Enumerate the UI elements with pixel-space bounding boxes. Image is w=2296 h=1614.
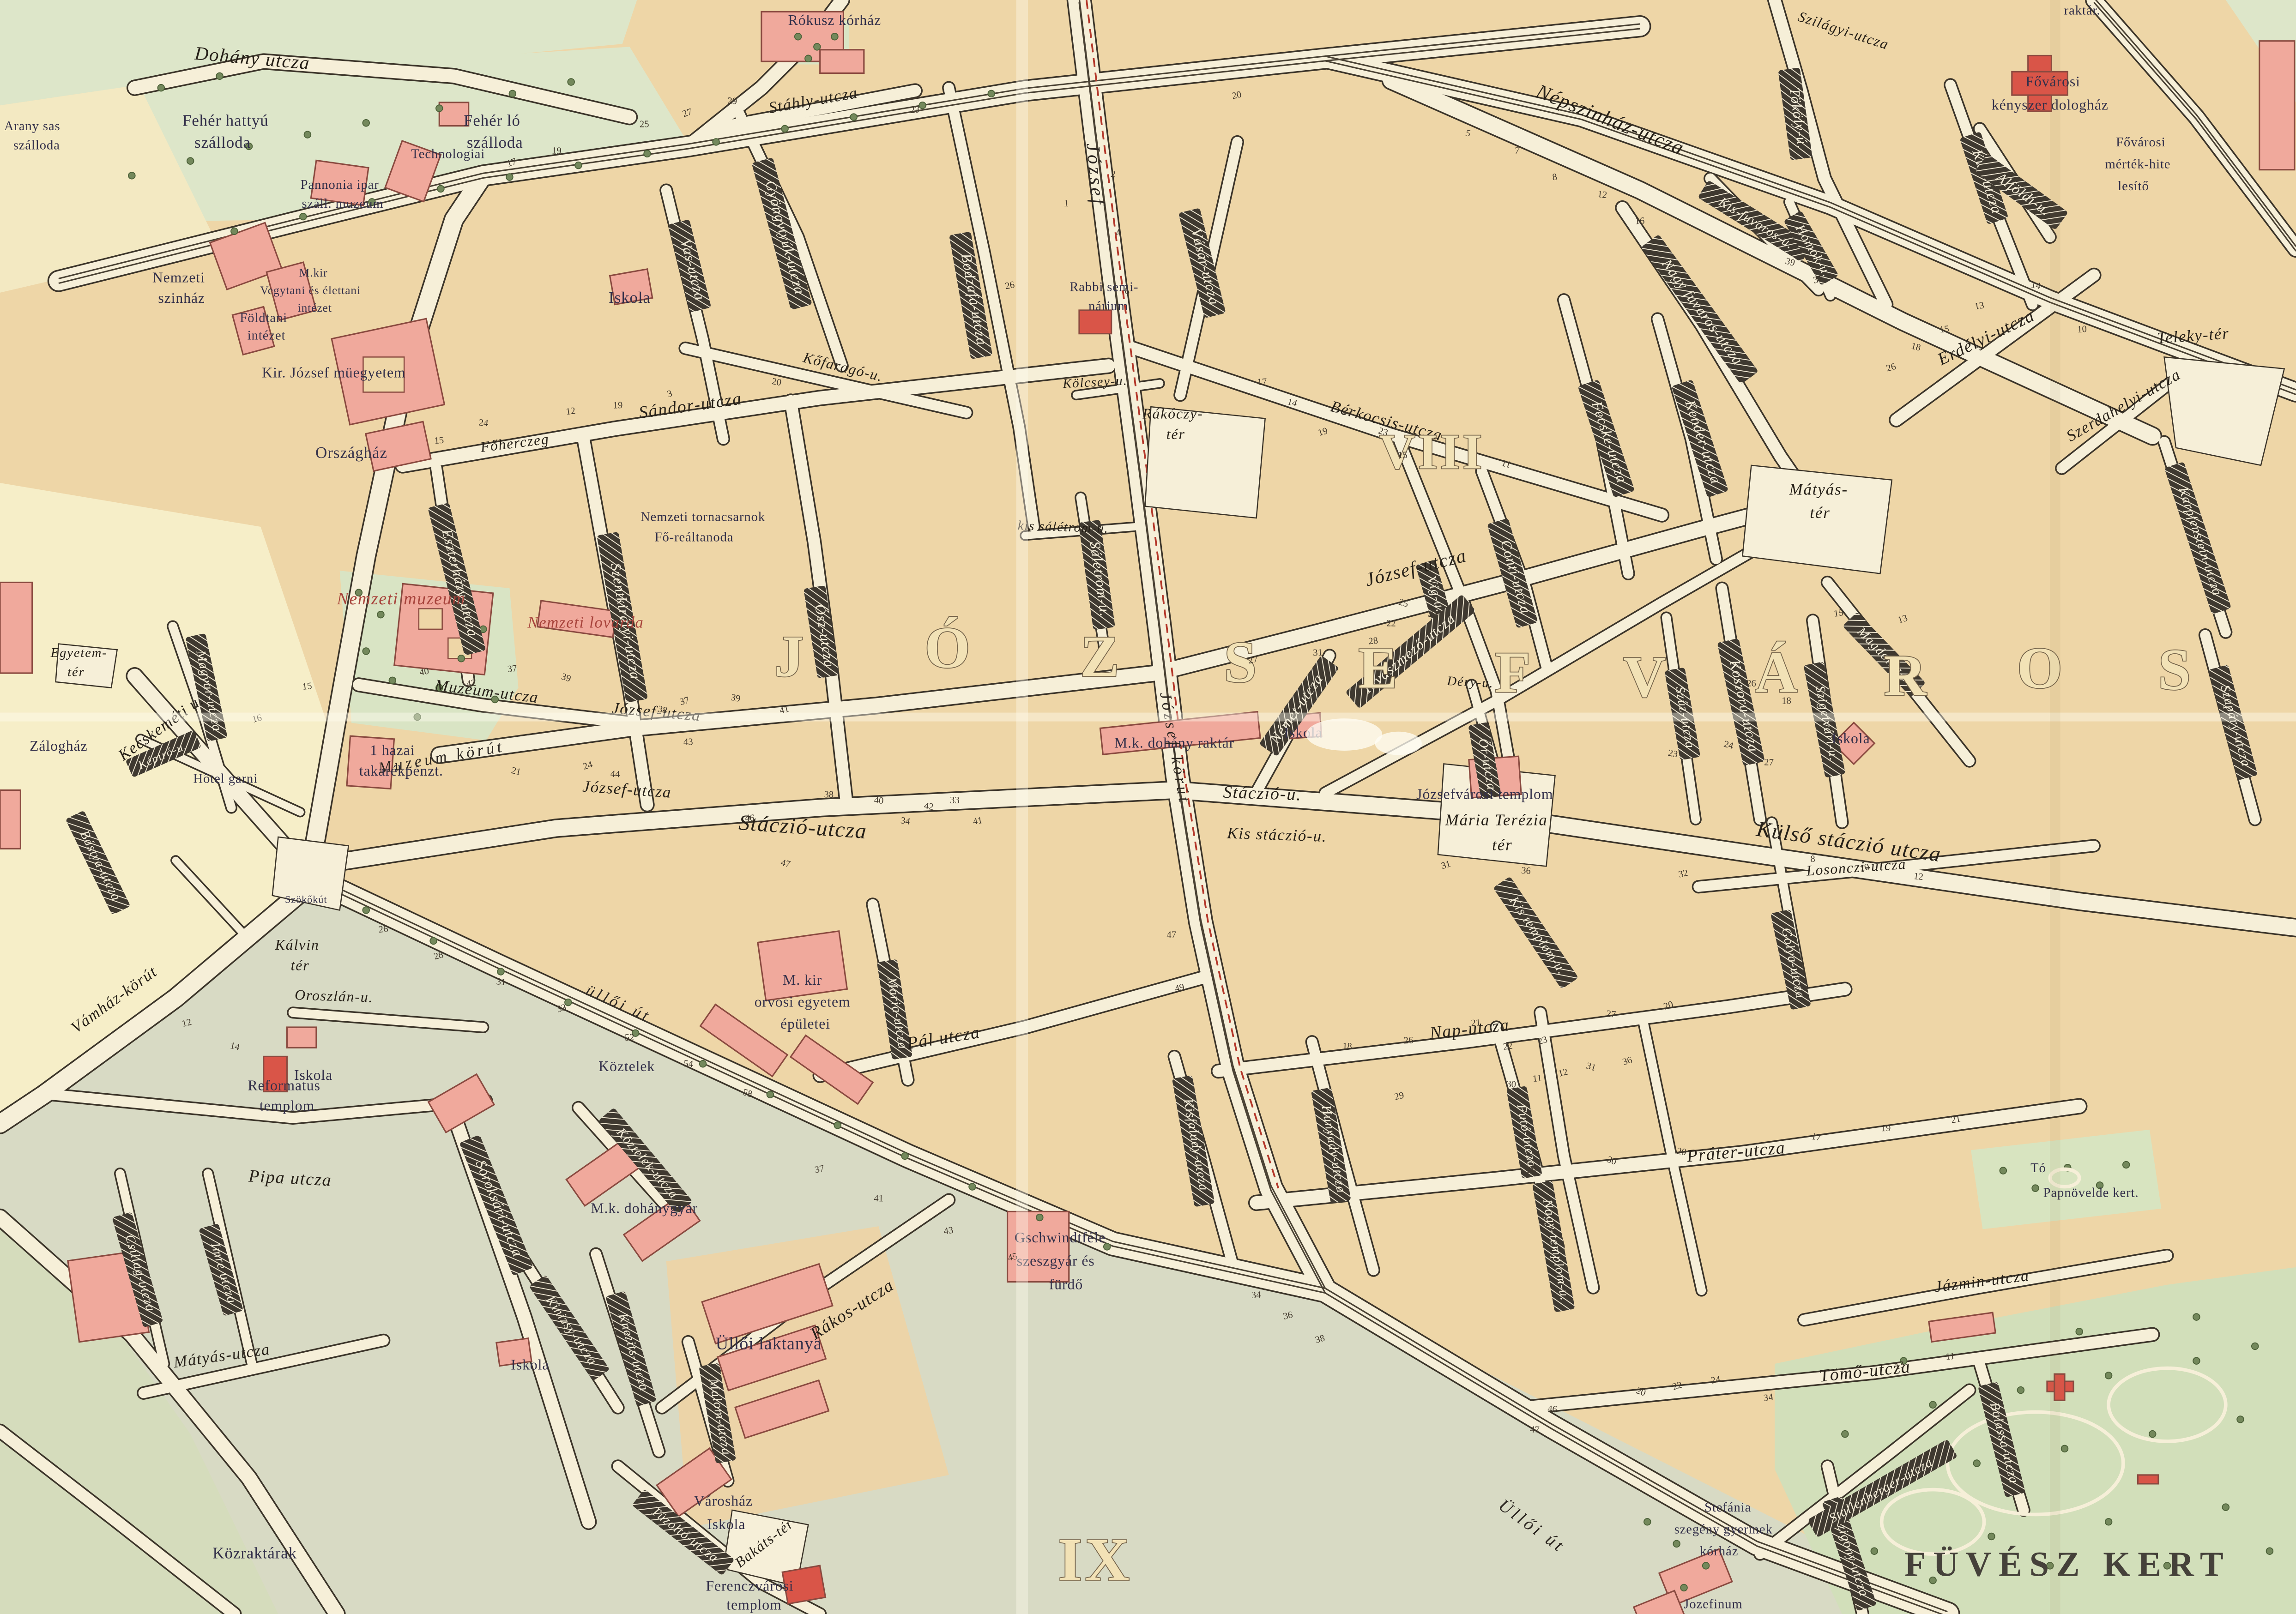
house-number: 19 bbox=[613, 400, 623, 410]
paper-damage bbox=[1375, 732, 1421, 755]
building bbox=[0, 582, 32, 673]
street-label: Stáczió-u. bbox=[1223, 783, 1302, 805]
tree-icon bbox=[1703, 1562, 1710, 1569]
poi-label: Nemzeti lovarda bbox=[527, 614, 644, 632]
house-number: 47 bbox=[1530, 1424, 1540, 1435]
poi-label: orvosi egyetem bbox=[755, 994, 851, 1010]
tree-icon bbox=[901, 1153, 908, 1160]
house-number: 8 bbox=[1810, 854, 1815, 864]
tree-icon bbox=[781, 126, 788, 132]
tree-icon bbox=[565, 999, 572, 1006]
tree-icon bbox=[1973, 1460, 1980, 1467]
tree-icon bbox=[216, 73, 223, 80]
house-number: 27 bbox=[1606, 1009, 1616, 1020]
house-number: 1 bbox=[1063, 199, 1069, 209]
tree-icon bbox=[437, 186, 444, 193]
poi-label: raktár. bbox=[2064, 4, 2101, 18]
tree-icon bbox=[1644, 1518, 1651, 1525]
house-number: 33 bbox=[950, 795, 960, 806]
house-number: 34 bbox=[1251, 1290, 1261, 1301]
house-number: 19 bbox=[1881, 1123, 1891, 1133]
poi-label: M.kir bbox=[299, 266, 328, 279]
tree-icon bbox=[795, 33, 802, 40]
poi-label: Pannonia ipar bbox=[301, 178, 379, 192]
poi-label: Technologiai bbox=[411, 147, 485, 161]
poi-label: Fehér ló bbox=[464, 112, 520, 130]
house-number: 11 bbox=[1532, 1073, 1542, 1084]
tree-icon bbox=[2000, 1167, 2007, 1174]
poi-label: intézet bbox=[298, 301, 332, 314]
house-number: 21 bbox=[1950, 1114, 1961, 1126]
park-title: FÜVÉSZ KERT bbox=[1904, 1545, 2231, 1584]
tree-icon bbox=[814, 43, 821, 50]
house-number: 15 bbox=[1398, 450, 1408, 460]
house-number: 44 bbox=[610, 769, 620, 780]
house-number: 39 bbox=[730, 693, 741, 705]
tree-icon bbox=[304, 131, 311, 138]
poi-label: szegény gyermek bbox=[1674, 1523, 1773, 1537]
poi-label: Földtani bbox=[240, 311, 287, 325]
poi-label: Fehér hattyú bbox=[182, 112, 269, 130]
tree-icon bbox=[1871, 1548, 1878, 1554]
tree-icon bbox=[436, 105, 443, 112]
house-number: 54 bbox=[683, 1059, 694, 1069]
building bbox=[820, 50, 864, 73]
poi-label: szeszgyár és bbox=[1017, 1253, 1095, 1269]
district-letter: Z bbox=[1080, 624, 1122, 689]
district-letter: F bbox=[1495, 640, 1534, 705]
house-number: 7 bbox=[1515, 146, 1520, 157]
plaza bbox=[1145, 407, 1265, 518]
tree-icon bbox=[850, 114, 857, 120]
tree-icon bbox=[363, 907, 369, 914]
poi-label: Üllői laktanya bbox=[716, 1334, 822, 1353]
tree-icon bbox=[363, 120, 369, 126]
house-number: 15 bbox=[302, 681, 313, 692]
map-container: Gyöngytyúk-utczaVas-utczaBodzafa-utczaŐs… bbox=[0, 0, 2296, 1614]
street-label: tér bbox=[67, 665, 85, 679]
poi-label: Nemzeti bbox=[152, 270, 205, 286]
poi-label: Közraktárak bbox=[212, 1544, 297, 1562]
terrain-regions bbox=[0, 0, 2296, 1614]
house-number: 46 bbox=[745, 813, 755, 823]
house-number: 14 bbox=[2030, 280, 2042, 291]
district-numeral: IX bbox=[1058, 1525, 1133, 1594]
house-number: 31 bbox=[496, 976, 507, 988]
poi-label: Reformatus bbox=[248, 1077, 320, 1093]
street-label: Rákóczy- bbox=[1142, 405, 1203, 422]
district-numeral: VIII bbox=[1379, 424, 1485, 479]
street-label: tér bbox=[1166, 426, 1185, 442]
house-number: 24 bbox=[478, 417, 489, 428]
house-number: 42 bbox=[923, 801, 934, 812]
tree-icon bbox=[2123, 1162, 2130, 1168]
house-number: 11 bbox=[1946, 1351, 1955, 1362]
landmark-building bbox=[1079, 310, 1112, 334]
tree-icon bbox=[1842, 1431, 1849, 1438]
house-number: 37 bbox=[814, 1163, 825, 1175]
building bbox=[2260, 41, 2295, 170]
house-number: 29 bbox=[727, 96, 737, 107]
tree-icon bbox=[128, 172, 135, 179]
house-number: 24 bbox=[1710, 1374, 1721, 1386]
poi-label: templom bbox=[260, 1098, 314, 1114]
tree-icon bbox=[805, 55, 812, 62]
district-letter: V bbox=[1623, 645, 1668, 710]
tree-icon bbox=[919, 102, 926, 109]
district-letter: E bbox=[1359, 636, 1401, 701]
street-label: Déry-u. bbox=[1446, 674, 1494, 691]
poi-label: Köztelek bbox=[598, 1058, 655, 1074]
house-number: 20 bbox=[771, 376, 782, 388]
poi-label: Iskola bbox=[707, 1516, 745, 1532]
poi-label: Iskola bbox=[609, 289, 651, 307]
tree-icon bbox=[2193, 1357, 2200, 1364]
tree-icon bbox=[969, 1183, 976, 1190]
poi-label: Ferenczvárosi bbox=[706, 1578, 793, 1594]
street-label: tér bbox=[1492, 836, 1512, 854]
map-canvas: Gyöngytyúk-utczaVas-utczaBodzafa-utczaŐs… bbox=[0, 0, 2296, 1614]
house-number: 26 bbox=[1004, 280, 1015, 292]
poi-label: fürdő bbox=[1049, 1276, 1083, 1292]
house-number: 13 bbox=[1974, 300, 1985, 312]
poi-label: szálloda bbox=[194, 133, 251, 151]
house-number: 37 bbox=[507, 663, 518, 675]
poi-label: Kir. József müegyetem bbox=[262, 365, 405, 381]
tree-icon bbox=[2223, 1504, 2230, 1511]
district-letter: R bbox=[1884, 644, 1929, 708]
house-number: 40 bbox=[874, 795, 884, 806]
tree-icon bbox=[1988, 1533, 1995, 1540]
house-number: 34 bbox=[900, 815, 911, 827]
poi-label: Stefánia bbox=[1704, 1500, 1751, 1515]
poi-label: Iskola bbox=[511, 1357, 549, 1373]
poi-label: szinház bbox=[158, 290, 205, 306]
street-label: Egyetem- bbox=[50, 646, 108, 660]
tree-icon bbox=[158, 84, 165, 91]
house-number: 26 bbox=[1403, 1035, 1414, 1046]
paper-crease bbox=[2050, 0, 2060, 1614]
house-number: 38 bbox=[824, 789, 834, 800]
street-label: tér bbox=[1810, 504, 1830, 522]
building bbox=[287, 1027, 316, 1048]
tree-icon bbox=[187, 157, 194, 164]
poi-label: templom bbox=[726, 1596, 781, 1613]
tree-icon bbox=[506, 174, 513, 181]
house-number: 21 bbox=[1471, 1018, 1481, 1028]
district-letter: S bbox=[2158, 638, 2194, 702]
house-number: 47 bbox=[1166, 930, 1176, 940]
poi-label: Zálogház bbox=[30, 738, 88, 754]
street-label: tér bbox=[291, 957, 310, 973]
district-letter: Á bbox=[1755, 640, 1801, 705]
tree-icon bbox=[389, 677, 396, 684]
house-number: 43 bbox=[683, 737, 693, 747]
tree-icon bbox=[713, 139, 719, 145]
house-number: 43 bbox=[943, 1225, 954, 1236]
poi-label: mérték-hite bbox=[2105, 157, 2171, 172]
poi-label: nárium bbox=[1088, 299, 1129, 313]
poi-label: Józsefvárosi templom bbox=[1416, 786, 1553, 802]
house-number: 22 bbox=[1342, 405, 1353, 417]
tree-icon bbox=[1036, 1214, 1043, 1221]
poi-label: Rókusz kórház bbox=[788, 12, 882, 28]
house-number: 18 bbox=[1782, 696, 1791, 706]
house-number: 46 bbox=[1547, 1404, 1558, 1415]
poi-label: száll. muzeum bbox=[302, 197, 383, 211]
tree-icon bbox=[2032, 1185, 2039, 1192]
house-number: 15 bbox=[434, 435, 444, 446]
house-number: 14 bbox=[229, 1041, 241, 1053]
building bbox=[0, 790, 20, 849]
poi-label: Tó bbox=[2030, 1161, 2046, 1175]
poi-label: Városház bbox=[694, 1493, 753, 1509]
house-number: 22 bbox=[1503, 1041, 1513, 1052]
poi-label: szálloda bbox=[13, 138, 60, 152]
house-number: 12 bbox=[1597, 189, 1607, 200]
poi-label: épületei bbox=[780, 1016, 830, 1032]
poi-label: Fővárosi bbox=[2116, 135, 2165, 150]
house-number: 17 bbox=[1257, 377, 1267, 387]
house-number: 52 bbox=[625, 1032, 634, 1043]
tree-icon bbox=[2266, 1548, 2273, 1554]
tree-icon bbox=[509, 90, 516, 97]
tree-icon bbox=[2149, 1431, 2156, 1438]
house-number: 26 bbox=[378, 924, 389, 935]
tree-icon bbox=[2105, 1518, 2112, 1525]
tree-icon bbox=[2061, 1445, 2068, 1452]
district-letter: Ó bbox=[924, 615, 973, 680]
poi-label: Országház bbox=[315, 444, 387, 462]
street-label: Mária Terézia bbox=[1445, 811, 1548, 829]
district-letter: J bbox=[774, 624, 807, 689]
house-number: 16 bbox=[1635, 216, 1645, 226]
house-number: 27 bbox=[1248, 655, 1258, 666]
tree-icon bbox=[568, 78, 574, 85]
poi-label: M.k. dohánygyár bbox=[591, 1200, 698, 1217]
poi-label: Vegytani és élettani bbox=[260, 284, 361, 297]
house-number: 25 bbox=[640, 120, 649, 130]
house-number: 2 bbox=[1110, 169, 1116, 180]
tree-icon bbox=[2105, 1372, 2112, 1379]
house-number: 28 bbox=[1368, 636, 1378, 647]
poi-label: M. kir bbox=[783, 972, 822, 988]
tree-icon bbox=[700, 1060, 707, 1067]
house-number: 22 bbox=[1386, 618, 1396, 628]
paper-crease bbox=[1016, 0, 1028, 1614]
tree-icon bbox=[300, 213, 307, 220]
tree-icon bbox=[1929, 1401, 1936, 1408]
tree-icon bbox=[377, 611, 384, 618]
house-number: 26 bbox=[1746, 678, 1756, 688]
poi-label: Nemzeti muzeum bbox=[336, 589, 465, 608]
tree-icon bbox=[831, 33, 838, 40]
poi-label: Fő-reáltanoda bbox=[655, 530, 734, 545]
house-number: 15 bbox=[1939, 324, 1950, 335]
tree-icon bbox=[430, 938, 437, 945]
house-number: 41 bbox=[874, 1193, 883, 1204]
poi-label: Jozefinum bbox=[1684, 1597, 1742, 1611]
tree-icon bbox=[767, 1091, 774, 1098]
house-number: 12 bbox=[1913, 871, 1924, 882]
street-label: Kálvin bbox=[275, 937, 320, 953]
tree-icon bbox=[363, 648, 369, 655]
tree-icon bbox=[2076, 1328, 2083, 1335]
house-number: 15 bbox=[1833, 608, 1844, 619]
tree-icon bbox=[497, 968, 504, 975]
house-number: 27 bbox=[1764, 757, 1774, 767]
house-number: 18 bbox=[1342, 1041, 1352, 1052]
tree-icon bbox=[575, 162, 582, 169]
street-label: Kis stáczió-u. bbox=[1227, 824, 1328, 846]
tree-icon bbox=[1673, 1541, 1680, 1548]
poi-label: Arany sas bbox=[4, 119, 60, 133]
poi-label: Szökőkút bbox=[285, 894, 327, 905]
house-number: 28 bbox=[1525, 1163, 1537, 1175]
house-number: 36 bbox=[1521, 866, 1531, 876]
street-label: Oroszlán-u. bbox=[295, 987, 374, 1006]
house-number: 40 bbox=[418, 666, 429, 678]
house-number: 20 bbox=[1676, 1146, 1687, 1157]
tree-icon bbox=[988, 90, 995, 97]
poi-label: Nemzeti tornacsarnok bbox=[640, 510, 765, 524]
house-number: 17 bbox=[1811, 1132, 1822, 1143]
house-number: 41 bbox=[972, 815, 983, 827]
tree-icon bbox=[2252, 1343, 2259, 1350]
house-number: 19 bbox=[551, 145, 562, 156]
poi-label: Gschwindtféle bbox=[1015, 1229, 1106, 1246]
tree-icon bbox=[458, 655, 465, 662]
street-label: Mátyás- bbox=[1788, 480, 1848, 498]
paper-crease bbox=[0, 713, 2296, 722]
landmark-building bbox=[2138, 1475, 2158, 1484]
house-number: 30 bbox=[1506, 1079, 1517, 1090]
poi-label: lesítő bbox=[2118, 179, 2149, 193]
tree-icon bbox=[834, 1122, 841, 1129]
house-number: 42 bbox=[465, 678, 476, 689]
tree-icon bbox=[644, 151, 651, 157]
building bbox=[758, 931, 847, 1000]
poi-label: kórház bbox=[1700, 1544, 1738, 1559]
tree-icon bbox=[2193, 1313, 2200, 1320]
tree-icon bbox=[231, 228, 238, 235]
poi-label: Iskola bbox=[1831, 730, 1870, 747]
house-number: 34 bbox=[1763, 1392, 1774, 1403]
courtyard bbox=[419, 609, 442, 629]
house-number: 10 bbox=[2077, 324, 2087, 335]
tree-icon bbox=[2237, 1416, 2244, 1423]
paper-damage bbox=[1306, 718, 1382, 751]
house-number: 31 bbox=[1313, 648, 1323, 658]
house-number: 12 bbox=[565, 406, 576, 417]
poi-label: Hôtel garni bbox=[193, 772, 258, 786]
tree-icon bbox=[2018, 1387, 2024, 1394]
house-number: 23 bbox=[910, 104, 920, 115]
tree-icon bbox=[1680, 1584, 1687, 1591]
poi-label: intézet bbox=[248, 328, 286, 343]
